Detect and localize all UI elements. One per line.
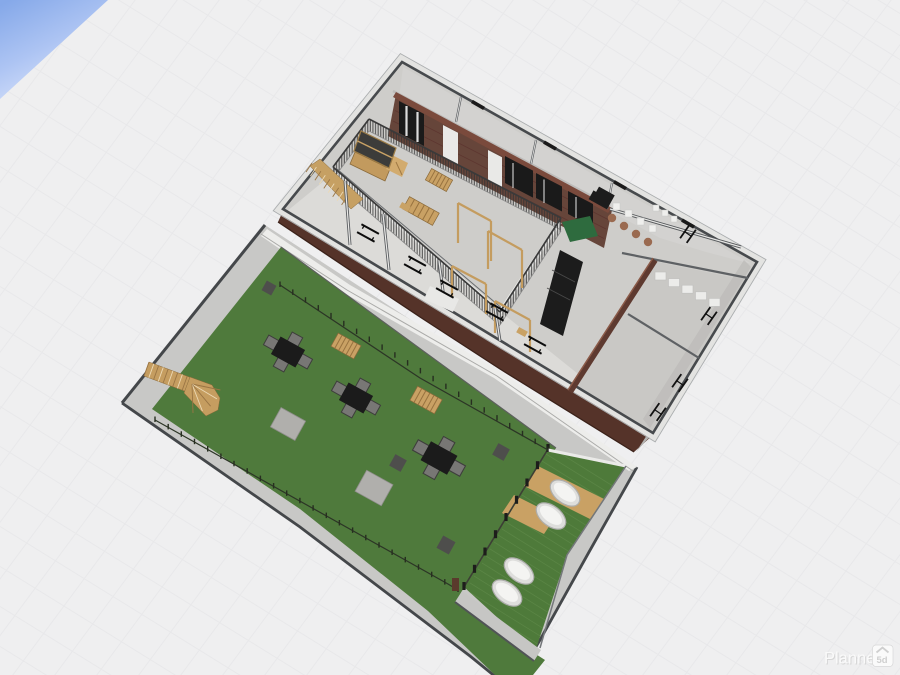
svg-text:5d: 5d <box>877 655 888 666</box>
